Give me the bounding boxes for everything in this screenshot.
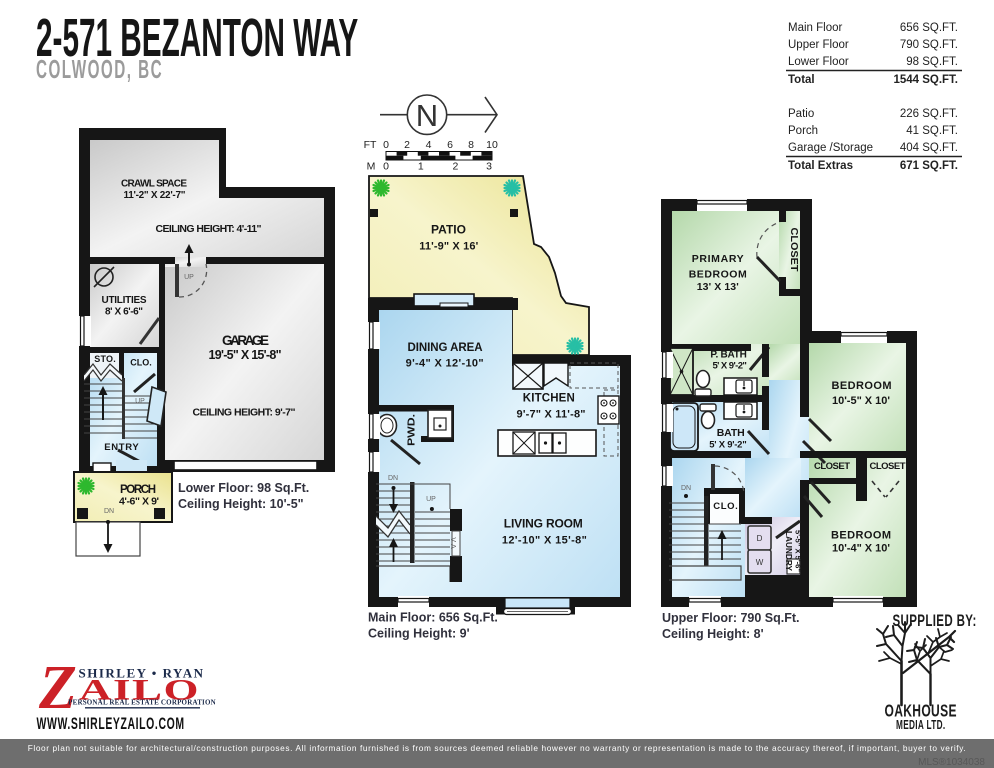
svg-text:N: N [416, 98, 438, 133]
svg-text:Porch: Porch [788, 125, 818, 137]
svg-text:Total Extras: Total Extras [788, 160, 853, 172]
svg-text:5'-5" X 5'-6": 5'-5" X 5'-6" [794, 530, 801, 572]
svg-text:Upper Floor: Upper Floor [788, 39, 849, 51]
svg-text:9'-7" X 11'-8": 9'-7" X 11'-8" [517, 409, 586, 421]
svg-text:GARAGE: GARAGE [222, 333, 269, 348]
svg-text:LAUNDRY: LAUNDRY [784, 531, 794, 571]
svg-text:1544 SQ.FT.: 1544 SQ.FT. [893, 74, 958, 86]
svg-text:12'-10" X 15'-8": 12'-10" X 15'-8" [502, 535, 587, 547]
svg-text:UP: UP [184, 274, 194, 281]
svg-text:UTILITIES: UTILITIES [102, 295, 147, 306]
svg-text:Main Floor: 656 Sq.Ft.: Main Floor: 656 Sq.Ft. [368, 611, 498, 625]
svg-text:BATH: BATH [717, 427, 745, 439]
svg-text:PRIMARY: PRIMARY [692, 253, 744, 265]
svg-text:0: 0 [383, 139, 389, 151]
svg-text:9'-4" X 12'-10": 9'-4" X 12'-10" [406, 358, 484, 370]
svg-text:2: 2 [404, 139, 410, 151]
svg-text:PWD.: PWD. [406, 414, 418, 446]
svg-text:CEILING HEIGHT: 9'-7": CEILING HEIGHT: 9'-7" [193, 407, 296, 419]
svg-text:Z: Z [38, 654, 77, 722]
svg-text:MLS®1034038: MLS®1034038 [918, 757, 985, 768]
svg-text:WWW.SHIRLEYZAILO.COM: WWW.SHIRLEYZAILO.COM [37, 713, 185, 732]
svg-text:10'-4" X 10': 10'-4" X 10' [832, 543, 890, 555]
svg-text:BEDROOM: BEDROOM [832, 380, 892, 392]
svg-text:CEILING HEIGHT: 4'-11": CEILING HEIGHT: 4'-11" [156, 223, 262, 235]
svg-text:13' X 13': 13' X 13' [697, 281, 739, 293]
svg-text:671 SQ.FT.: 671 SQ.FT. [900, 160, 958, 172]
svg-text:Lower Floor: 98 Sq.Ft.: Lower Floor: 98 Sq.Ft. [178, 481, 309, 495]
svg-text:CLOSET: CLOSET [870, 461, 906, 472]
svg-text:MEDIA LTD.: MEDIA LTD. [896, 718, 946, 732]
svg-text:DN: DN [681, 485, 691, 492]
svg-text:4'-6" X 9': 4'-6" X 9' [119, 496, 159, 508]
svg-text:CLO.: CLO. [713, 501, 738, 512]
svg-text:DINING AREA: DINING AREA [408, 342, 483, 354]
svg-text:Garage /Storage: Garage /Storage [788, 142, 873, 154]
svg-text:5' X 9'-2": 5' X 9'-2" [709, 440, 747, 451]
svg-text:19'-5" X 15'-8": 19'-5" X 15'-8" [209, 348, 282, 362]
svg-text:Ceiling Height: 9': Ceiling Height: 9' [368, 627, 470, 641]
svg-text:CLOSET: CLOSET [814, 461, 850, 472]
svg-text:UP: UP [135, 398, 145, 405]
svg-text:2: 2 [452, 161, 458, 173]
svg-text:DN: DN [104, 508, 114, 515]
svg-text:1: 1 [418, 161, 424, 173]
svg-text:M: M [367, 161, 376, 173]
svg-text:404 SQ.FT.: 404 SQ.FT. [900, 142, 958, 154]
svg-text:656 SQ.FT.: 656 SQ.FT. [900, 22, 958, 34]
svg-text:D: D [757, 534, 763, 543]
svg-text:SHIRLEY • RYAN: SHIRLEY • RYAN [79, 666, 205, 681]
svg-text:PATIO: PATIO [431, 223, 466, 237]
svg-text:41 SQ.FT.: 41 SQ.FT. [906, 125, 958, 137]
svg-text:6: 6 [447, 139, 453, 151]
svg-text:Patio: Patio [788, 108, 814, 120]
svg-text:Total: Total [788, 74, 815, 86]
svg-text:0: 0 [383, 161, 389, 173]
svg-text:3: 3 [486, 161, 492, 173]
svg-text:STO.: STO. [94, 354, 116, 364]
svg-text:UP: UP [426, 496, 436, 503]
svg-text:KITCHEN: KITCHEN [523, 392, 575, 404]
svg-text:226 SQ.FT.: 226 SQ.FT. [900, 108, 958, 120]
svg-text:8: 8 [468, 139, 474, 151]
svg-text:FT: FT [364, 139, 377, 151]
svg-text:DN: DN [388, 475, 398, 482]
svg-text:CLO.: CLO. [130, 358, 152, 368]
svg-text:10'-5" X 10': 10'-5" X 10' [832, 395, 890, 407]
svg-text:BEDROOM: BEDROOM [689, 268, 747, 280]
svg-text:8' X 6'-6": 8' X 6'-6" [105, 307, 143, 318]
svg-text:4: 4 [426, 139, 432, 151]
svg-text:V Λ: V Λ [451, 537, 458, 549]
svg-text:Main Floor: Main Floor [788, 22, 842, 34]
svg-text:Floor plan not suitable for ar: Floor plan not suitable for architectura… [28, 743, 967, 753]
svg-text:11'-9" X 16': 11'-9" X 16' [419, 241, 478, 253]
svg-text:PERSONAL REAL ESTATE CORPORATI: PERSONAL REAL ESTATE CORPORATION [68, 699, 216, 707]
svg-text:W: W [756, 558, 764, 567]
svg-text:Ceiling Height: 8': Ceiling Height: 8' [662, 627, 764, 641]
svg-text:Upper Floor: 790 Sq.Ft.: Upper Floor: 790 Sq.Ft. [662, 611, 800, 625]
svg-text:P. BATH: P. BATH [710, 350, 747, 361]
svg-text:PORCH: PORCH [120, 484, 156, 496]
svg-text:Ceiling Height: 10'-5": Ceiling Height: 10'-5" [178, 497, 304, 511]
svg-text:ENTRY: ENTRY [104, 442, 139, 453]
svg-text:Lower Floor: Lower Floor [788, 56, 849, 68]
svg-text:98 SQ.FT.: 98 SQ.FT. [906, 56, 958, 68]
svg-text:COLWOOD, BC: COLWOOD, BC [36, 55, 163, 84]
svg-text:CLOSET: CLOSET [788, 228, 799, 272]
svg-text:790 SQ.FT.: 790 SQ.FT. [900, 39, 958, 51]
svg-text:5' X 9'-2": 5' X 9'-2" [712, 361, 747, 372]
svg-text:BEDROOM: BEDROOM [831, 530, 891, 542]
svg-text:11'-2" X 22'-7": 11'-2" X 22'-7" [124, 190, 186, 201]
svg-text:10: 10 [486, 139, 498, 151]
svg-text:CRAWL SPACE: CRAWL SPACE [121, 179, 187, 190]
svg-text:LIVING ROOM: LIVING ROOM [504, 516, 583, 530]
